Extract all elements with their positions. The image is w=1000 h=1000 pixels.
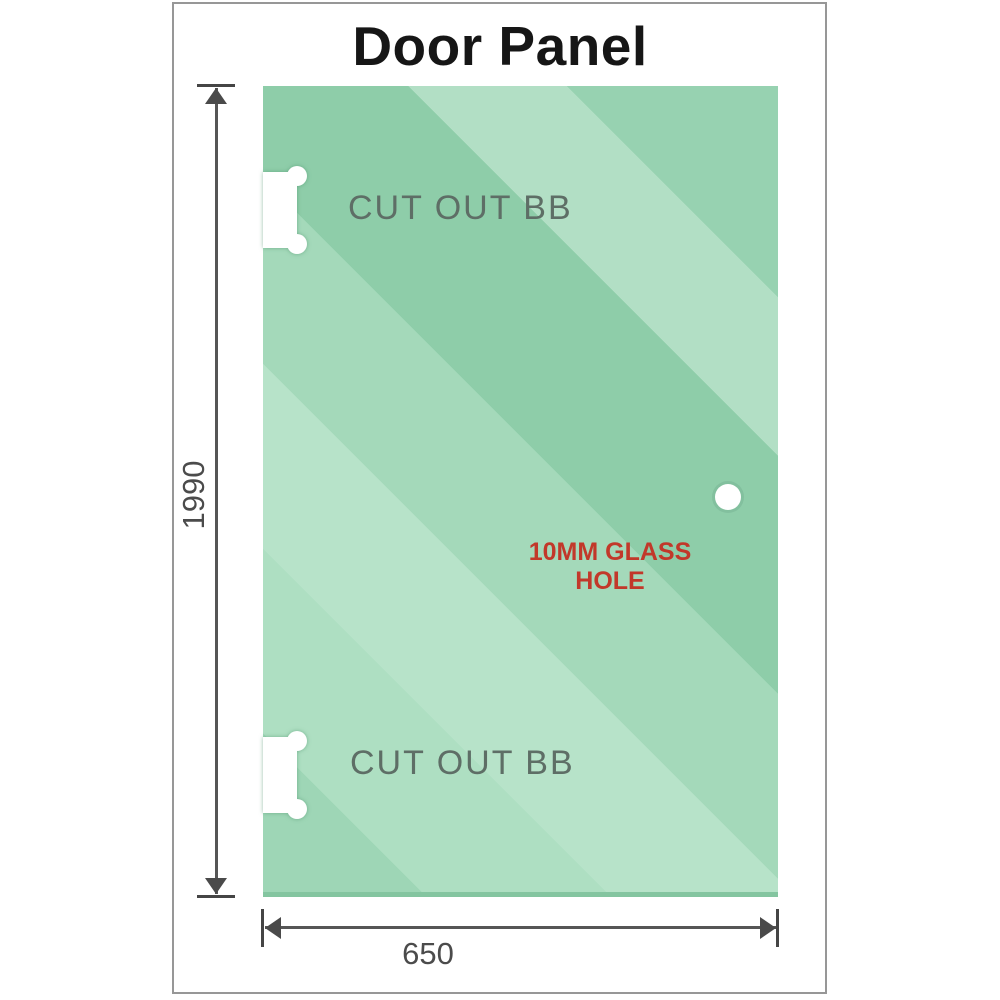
glass-hole: [715, 484, 741, 510]
cutout-hole-bottom: [287, 799, 307, 819]
width-dimension-label: 650: [378, 936, 478, 972]
cutout-label-top: CUT OUT BB: [348, 188, 608, 228]
glass-panel: CUT OUT BB CUT OUT BB 10MM GLASS HOLE: [263, 86, 778, 897]
arrow-left-icon: [265, 917, 281, 939]
cutout-hole-top: [287, 731, 307, 751]
cutout-hole-bottom: [287, 234, 307, 254]
dimension-tick: [261, 909, 264, 947]
dimension-tick: [197, 84, 235, 87]
arrow-right-icon: [760, 917, 776, 939]
dimension-line: [215, 88, 218, 894]
arrow-down-icon: [205, 878, 227, 894]
dimension-tick: [197, 895, 235, 898]
height-dimension-label: 1990: [177, 440, 211, 550]
dimension-line: [265, 926, 776, 929]
cutout-label-bottom: CUT OUT BB: [350, 743, 610, 783]
page-title: Door Panel: [173, 14, 827, 78]
arrow-up-icon: [205, 88, 227, 104]
hinge-cutout-bottom: [263, 727, 309, 823]
glass-hole-label: 10MM GLASS HOLE: [510, 538, 710, 596]
door-panel-diagram: Door Panel CUT OUT BB CUT OUT BB 10MM GL…: [0, 0, 1000, 1000]
cutout-hole-top: [287, 166, 307, 186]
dimension-tick: [776, 909, 779, 947]
hinge-cutout-top: [263, 162, 309, 258]
